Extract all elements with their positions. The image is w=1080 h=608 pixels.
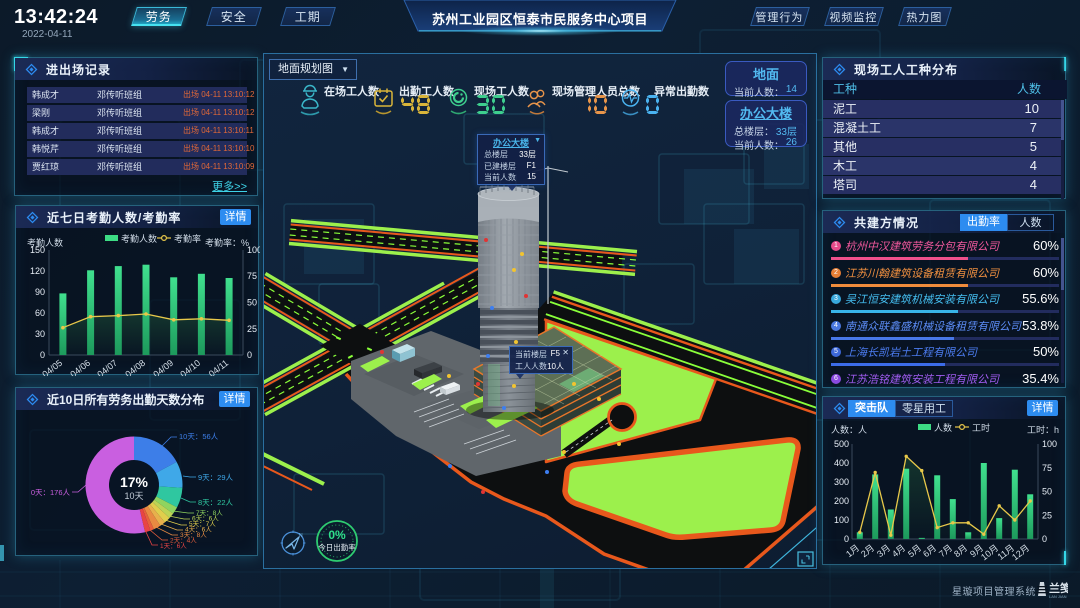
svg-text:兰笺: 兰笺 [1049, 581, 1068, 595]
svg-text:04/06: 04/06 [68, 358, 92, 376]
svg-text:50: 50 [1042, 487, 1052, 497]
svg-text:9天：29人: 9天：29人 [198, 473, 234, 482]
svg-text:120: 120 [30, 266, 45, 276]
svg-text:04/09: 04/09 [151, 358, 175, 376]
svg-text:0天：176人: 0天：176人 [31, 488, 71, 497]
svg-text:10天：56人: 10天：56人 [179, 432, 219, 441]
svg-text:1天：6人: 1天：6人 [160, 542, 187, 550]
svg-text:100: 100 [1042, 439, 1057, 449]
svg-text:LAN JIAN: LAN JIAN [1049, 594, 1067, 599]
svg-text:25: 25 [1042, 510, 1052, 520]
svg-text:工时: 工时 [972, 422, 990, 433]
svg-text:0: 0 [844, 534, 849, 544]
svg-text:2月: 2月 [859, 543, 876, 560]
svg-text:今日出勤率: 今日出勤率 [318, 542, 356, 552]
svg-text:04/08: 04/08 [123, 358, 147, 376]
svg-text:考勤率: 考勤率 [174, 233, 201, 244]
svg-text:200: 200 [834, 496, 849, 506]
svg-text:25: 25 [247, 324, 257, 334]
svg-text:75: 75 [1042, 463, 1052, 473]
svg-text:04/10: 04/10 [178, 358, 202, 376]
svg-text:0: 0 [40, 350, 45, 360]
svg-text:04/07: 04/07 [95, 358, 119, 376]
svg-text:N: N [299, 533, 303, 539]
svg-text:17%: 17% [120, 474, 149, 490]
svg-text:考勤人数: 考勤人数 [121, 233, 157, 244]
svg-text:300: 300 [834, 477, 849, 487]
svg-text:人数: 人数 [934, 422, 952, 433]
svg-text:150: 150 [30, 245, 45, 255]
svg-text:0: 0 [1042, 534, 1047, 544]
svg-text:0%: 0% [328, 528, 346, 542]
svg-text:30: 30 [35, 329, 45, 339]
svg-text:人数：人: 人数：人 [831, 424, 867, 435]
svg-text:8天：22人: 8天：22人 [198, 498, 234, 507]
svg-text:04/11: 04/11 [207, 358, 230, 376]
svg-text:12月: 12月 [1010, 543, 1031, 563]
svg-text:04/05: 04/05 [40, 358, 64, 376]
svg-text:60: 60 [35, 308, 45, 318]
svg-text:400: 400 [834, 458, 849, 468]
svg-text:100: 100 [247, 245, 260, 255]
svg-text:4月: 4月 [890, 543, 907, 560]
svg-text:考勤率：%: 考勤率：% [205, 237, 249, 248]
svg-text:0: 0 [247, 350, 252, 360]
svg-text:6月: 6月 [921, 543, 938, 560]
svg-text:8月: 8月 [952, 543, 969, 560]
svg-text:100: 100 [834, 515, 849, 525]
svg-text:10天: 10天 [124, 491, 143, 501]
svg-text:50: 50 [247, 298, 257, 308]
svg-text:500: 500 [834, 439, 849, 449]
svg-text:90: 90 [35, 287, 45, 297]
svg-text:工时：h: 工时：h [1027, 424, 1059, 435]
svg-text:75: 75 [247, 271, 257, 281]
